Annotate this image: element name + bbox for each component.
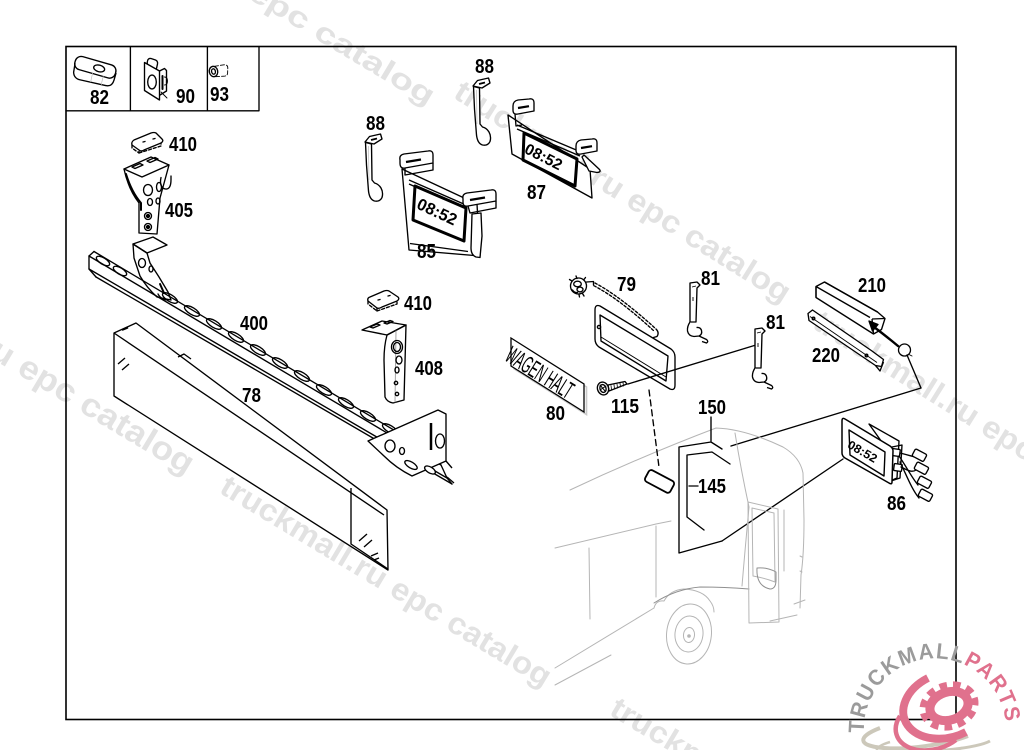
svg-text:78: 78: [242, 385, 261, 407]
svg-text:93: 93: [210, 84, 229, 106]
svg-text:86: 86: [887, 493, 906, 515]
svg-text:90: 90: [176, 86, 195, 108]
svg-text:210: 210: [858, 275, 886, 297]
svg-text:400: 400: [240, 313, 268, 335]
svg-text:81: 81: [701, 268, 720, 290]
svg-text:88: 88: [366, 113, 385, 135]
svg-text:150: 150: [698, 397, 726, 419]
svg-text:408: 408: [415, 358, 443, 380]
svg-text:81: 81: [766, 312, 785, 334]
svg-text:115: 115: [611, 396, 639, 418]
svg-text:405: 405: [165, 200, 193, 222]
svg-text:80: 80: [546, 403, 565, 425]
svg-text:145: 145: [698, 476, 726, 498]
svg-text:410: 410: [169, 134, 197, 156]
svg-text:88: 88: [475, 56, 494, 78]
svg-text:87: 87: [527, 182, 546, 204]
svg-text:79: 79: [617, 274, 636, 296]
svg-text:85: 85: [417, 241, 436, 263]
svg-text:410: 410: [404, 293, 432, 315]
svg-text:82: 82: [90, 87, 109, 109]
svg-text:220: 220: [812, 345, 840, 367]
